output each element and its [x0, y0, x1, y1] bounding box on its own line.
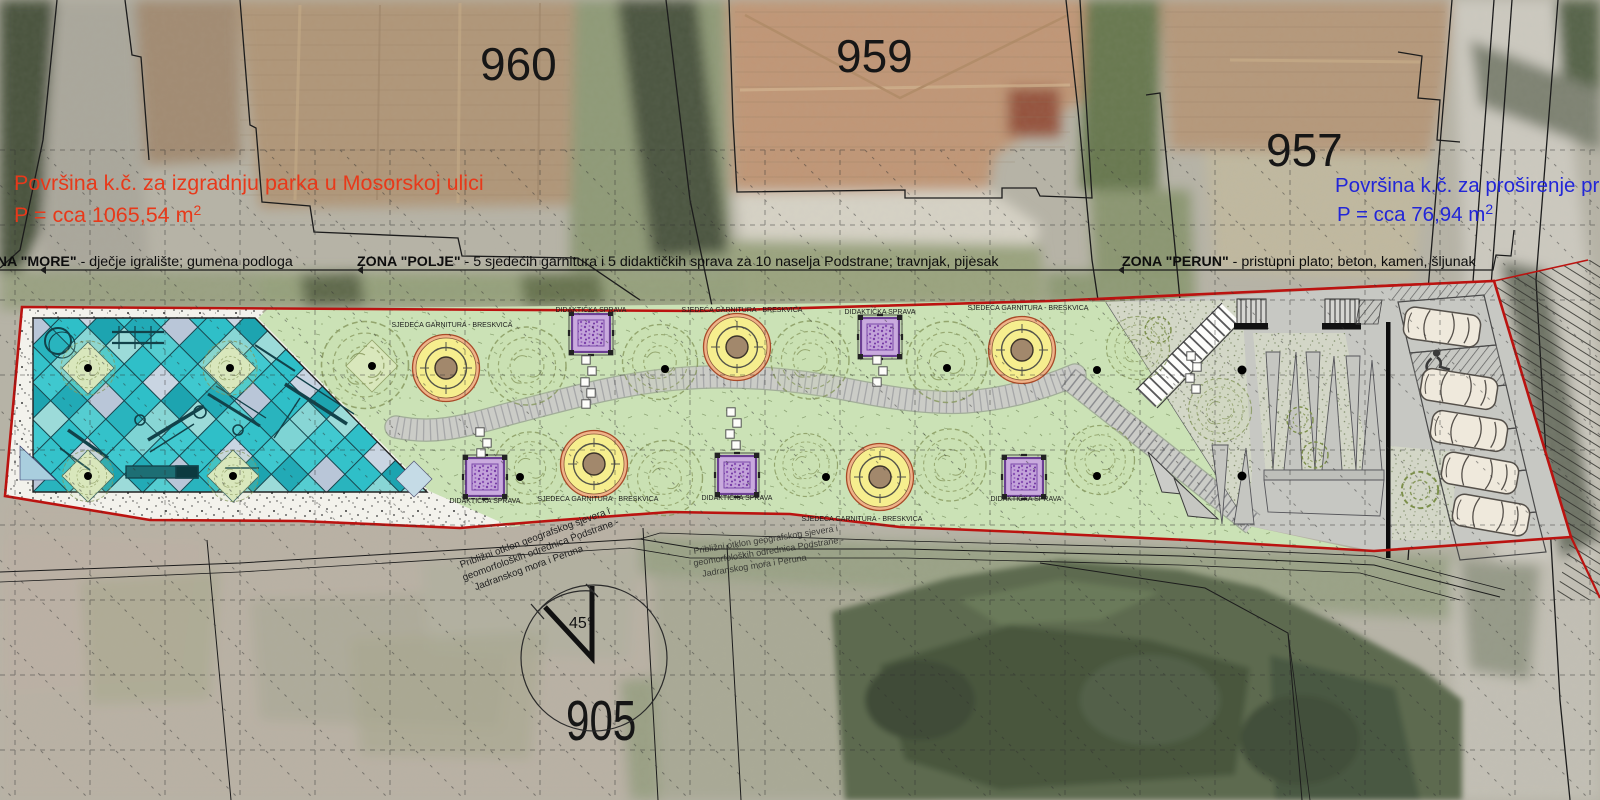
svg-text:905: 905 [566, 689, 636, 753]
svg-text:960: 960 [480, 38, 557, 90]
svg-text:SJEDEĆA GARNITURA - BRESKVICA: SJEDEĆA GARNITURA - BRESKVICA [968, 303, 1089, 312]
svg-text:DIDAKTIČKA SPRAVA: DIDAKTIČKA SPRAVA [702, 493, 773, 502]
svg-text:SJEDEĆA GARNITURA - BRESKVICA: SJEDEĆA GARNITURA - BRESKVICA [682, 305, 803, 314]
svg-text:DIDAKTIČKA SPRAVA: DIDAKTIČKA SPRAVA [991, 494, 1062, 503]
svg-text:P = cca 1065,54 m2: P = cca 1065,54 m2 [14, 202, 202, 227]
svg-text:DIDAKTIČKA SPRAVA: DIDAKTIČKA SPRAVA [556, 305, 627, 314]
svg-text:Površina k.č. za izgradnju par: Površina k.č. za izgradnju parka u Mosor… [14, 171, 484, 195]
svg-text:P = cca 76,94 m2: P = cca 76,94 m2 [1337, 201, 1493, 226]
svg-text:DIDAKTIČKA SPRAVA: DIDAKTIČKA SPRAVA [845, 307, 916, 316]
svg-text:959: 959 [836, 30, 913, 82]
svg-text:ZONA "PERUN" - pristupni plato: ZONA "PERUN" - pristupni plato; beton, k… [1122, 254, 1476, 270]
svg-text:SJEDEĆA GARNITURA - BRESKVICA: SJEDEĆA GARNITURA - BRESKVICA [802, 514, 923, 523]
svg-text:SJEDEĆA GARNITURA - BRESKVICA: SJEDEĆA GARNITURA - BRESKVICA [538, 494, 659, 503]
svg-text:ZONA "POLJE" - 5 sjedećih garn: ZONA "POLJE" - 5 sjedećih garnitura i 5 … [357, 254, 999, 270]
svg-text:Površina k.č. za proširenje pr: Površina k.č. za proširenje pro [1335, 174, 1600, 197]
svg-text:SJEDEĆA GARNITURA - BRESKVICA: SJEDEĆA GARNITURA - BRESKVICA [392, 320, 513, 329]
svg-text:45°: 45° [569, 615, 593, 632]
svg-text:DIDAKTIČKA SPRAVA: DIDAKTIČKA SPRAVA [450, 496, 521, 505]
svg-text:ZONA "MORE" - dječje igralište: ZONA "MORE" - dječje igralište; gumena p… [0, 254, 293, 270]
